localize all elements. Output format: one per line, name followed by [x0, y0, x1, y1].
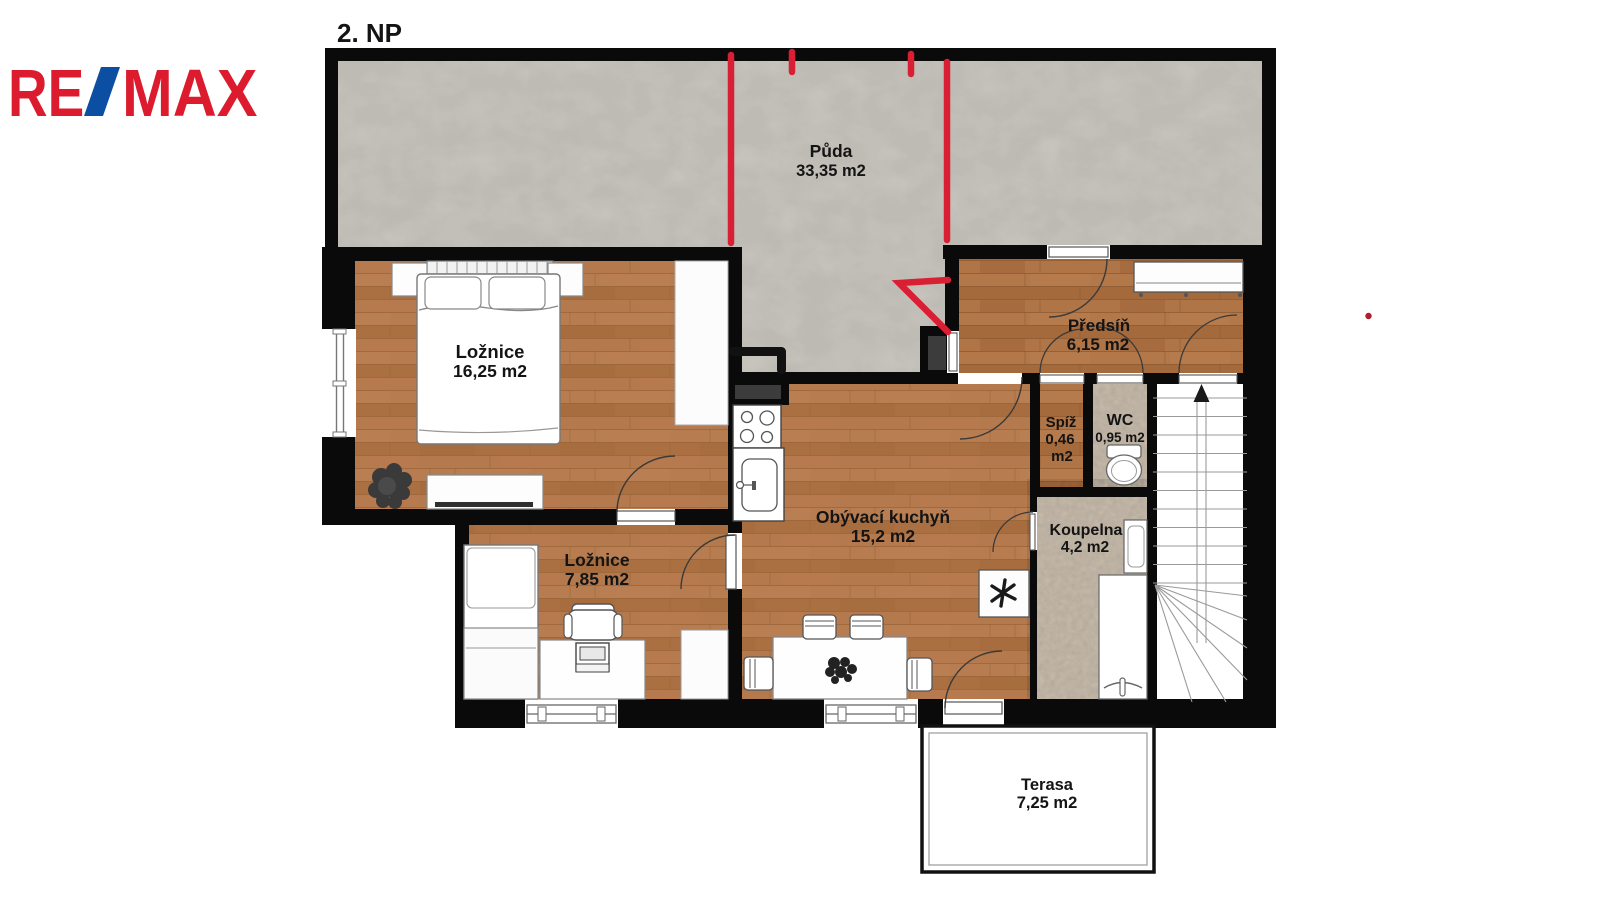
svg-text:m2: m2 — [1051, 448, 1073, 465]
svg-text:Ložnice: Ložnice — [564, 550, 629, 570]
svg-text:6,15 m2: 6,15 m2 — [1067, 335, 1129, 354]
svg-text:Ložnice: Ložnice — [456, 341, 525, 362]
svg-text:Obývací kuchyň: Obývací kuchyň — [816, 507, 950, 527]
svg-text:MAX: MAX — [122, 55, 258, 130]
svg-text:33,35 m2: 33,35 m2 — [796, 162, 866, 180]
svg-text:0,46: 0,46 — [1045, 431, 1074, 448]
svg-text:Půda: Půda — [810, 141, 853, 161]
svg-text:4,2 m2: 4,2 m2 — [1061, 539, 1109, 556]
svg-text:Spíž: Spíž — [1046, 414, 1077, 431]
svg-text:WC: WC — [1107, 412, 1134, 429]
svg-text:15,2 m2: 15,2 m2 — [851, 526, 915, 546]
svg-text:Terasa: Terasa — [1021, 776, 1074, 794]
svg-text:Koupelna: Koupelna — [1050, 522, 1123, 539]
svg-text:7,25 m2: 7,25 m2 — [1017, 794, 1078, 812]
svg-text:16,25 m2: 16,25 m2 — [453, 361, 527, 381]
svg-text:2. NP: 2. NP — [337, 18, 402, 48]
svg-text:Předsíň: Předsíň — [1068, 316, 1130, 335]
svg-text:7,85 m2: 7,85 m2 — [565, 569, 629, 589]
svg-text:0,95 m2: 0,95 m2 — [1095, 430, 1145, 445]
svg-text:RE: RE — [8, 56, 84, 130]
